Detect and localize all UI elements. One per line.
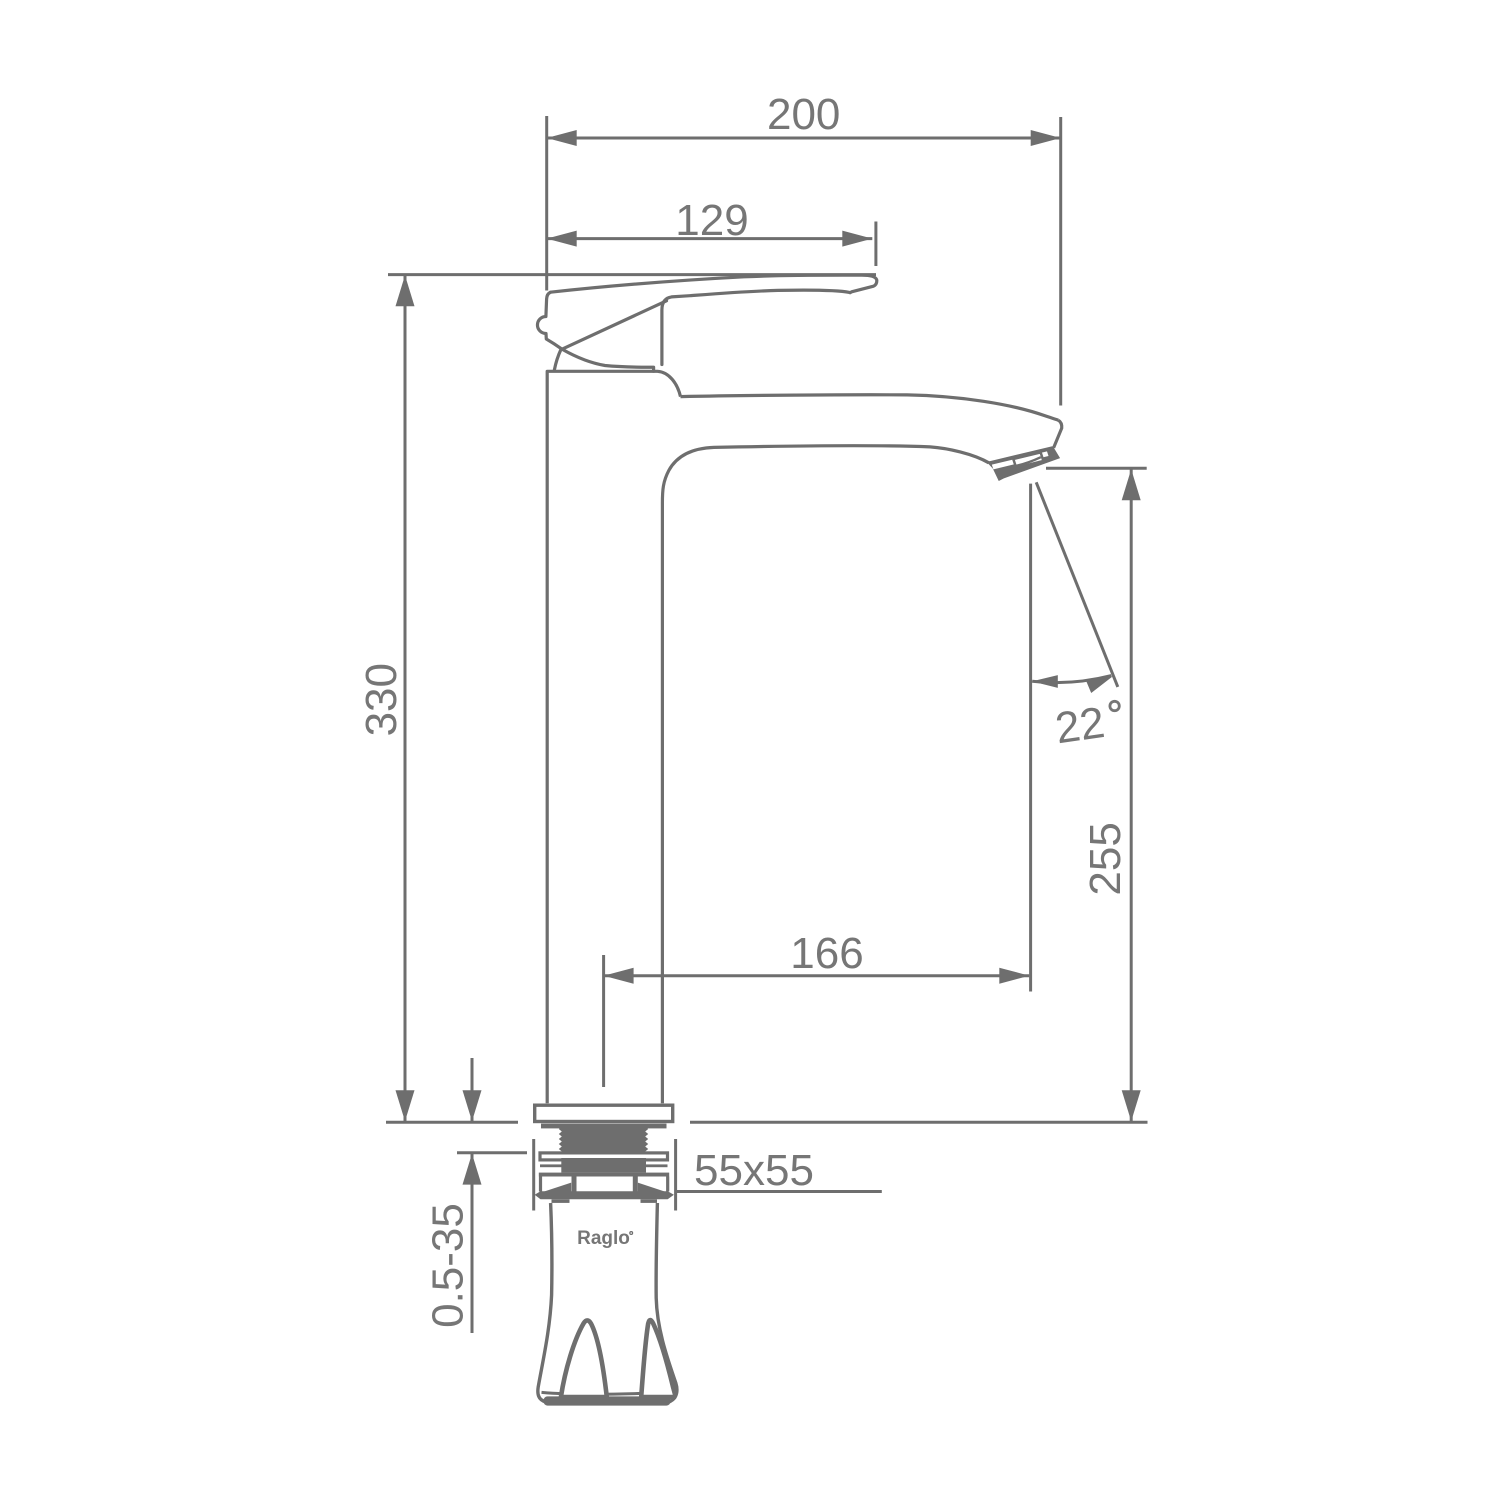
svg-text:Raglo: Raglo bbox=[577, 1228, 630, 1249]
svg-text:55x55: 55x55 bbox=[694, 1146, 814, 1195]
svg-text:255: 255 bbox=[1081, 822, 1130, 895]
svg-text:330: 330 bbox=[357, 663, 406, 736]
svg-text:200: 200 bbox=[767, 90, 840, 139]
svg-text:0.5-35: 0.5-35 bbox=[424, 1203, 473, 1328]
svg-text:166: 166 bbox=[790, 929, 863, 978]
svg-text:22: 22 bbox=[1052, 698, 1107, 753]
svg-text:129: 129 bbox=[675, 196, 748, 245]
